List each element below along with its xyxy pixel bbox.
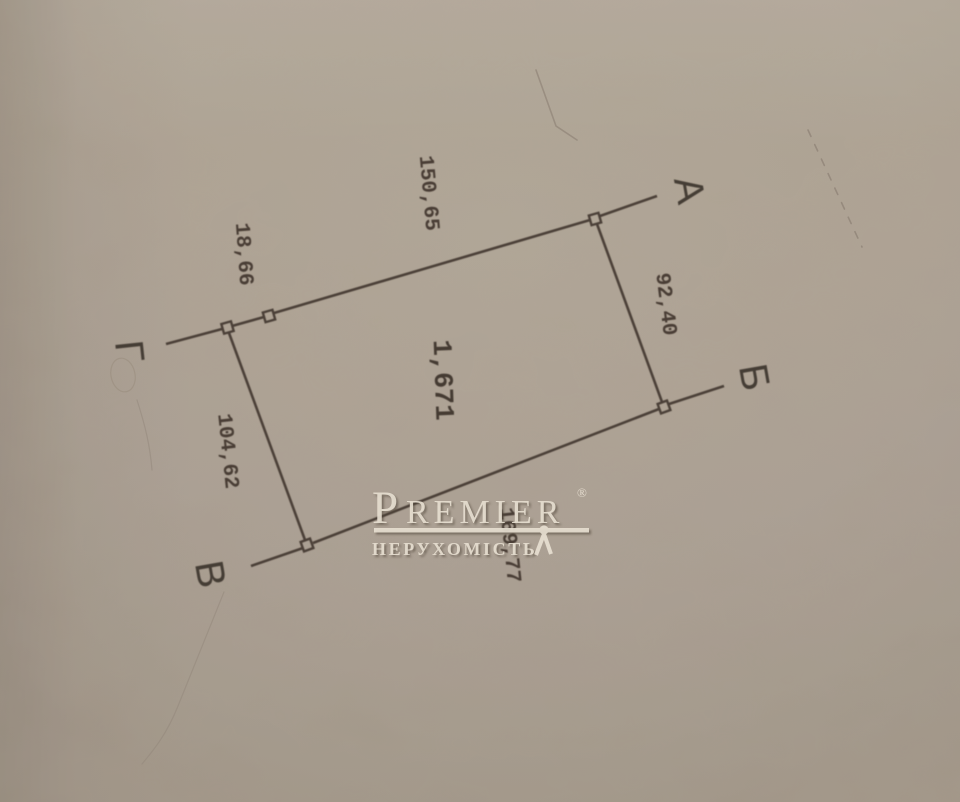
svg-text:1,671: 1,671	[425, 339, 458, 421]
svg-text:НЕРУХОМІСТЬ: НЕРУХОМІСТЬ	[372, 539, 537, 559]
svg-text:18,66: 18,66	[229, 222, 256, 286]
svg-text:Г: Г	[106, 338, 152, 364]
svg-text:REMIER: REMIER	[406, 494, 564, 531]
svg-text:®: ®	[577, 485, 587, 500]
svg-text:P: P	[372, 482, 402, 534]
